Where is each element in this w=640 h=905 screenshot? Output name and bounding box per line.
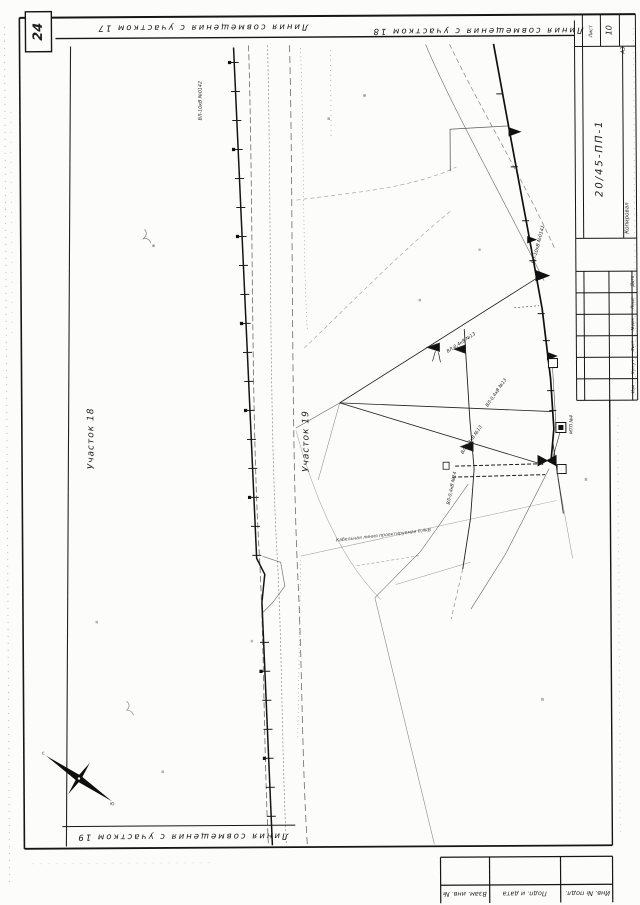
transformer-box-fill [559,426,563,430]
street-edge-curves [296,44,556,349]
powerline-0142 [228,47,276,845]
powerline-0141 [468,43,573,609]
side-table-cell-label: Подп. и дата [503,889,547,896]
drawing-sheet: С Ю 24 Линия совмещения с участком 17 Ли… [0,0,640,905]
stamp-row-label: Изм [631,385,635,394]
pole-flag-icon [509,128,520,136]
page-number: 24 [32,23,45,41]
pole-flag-icon [536,271,549,281]
parcel-18-label: Участок 18 [87,407,96,469]
pole-flag-icon [427,343,439,351]
kopiroval-label: Копировал [625,202,631,233]
projected-cable-line [355,306,546,566]
format-label: А3 [621,46,627,53]
mtp-label: МТП №4 [570,415,575,434]
parcel-boundary-line [62,47,76,847]
compass-south-letter: Ю [110,801,115,806]
powerline-0142-label: ВЛ-10кВ №0142 [198,81,203,120]
road-band [249,45,336,845]
frame-lines [19,8,640,849]
match-line-label-bottom: Линия совмещения с участком 19 [76,831,288,841]
compass-north-letter: С [42,751,45,756]
match-line-label-top-right: Линия совмещения с участком 18 [371,25,583,35]
lv-network-lines [295,279,553,621]
side-table-cell-label: Инв. № подл. [565,889,610,896]
scan-specks [93,93,589,772]
match-line-label-top-left: Линия совмещения с участком 17 [96,22,308,32]
lower-boundary-lines [296,429,559,846]
stamp-row-label: Подп [631,297,635,308]
stamp-row-label: Лист [631,341,635,352]
compass-rose-icon: С Ю [35,740,123,818]
pole-flag-icon [528,237,536,243]
stamp-row-label: Кол.уч [631,360,635,375]
pole-tick-symbols [496,94,556,411]
stamp-row-label: №док [631,318,635,330]
transformer-box-icon [548,359,557,368]
document-number: 20/45-ПП-1 [595,120,605,197]
sheet-number-value: 10 [605,25,613,35]
scanned-plan-page: С Ю 24 Линия совмещения с участком 17 Ли… [0,0,640,905]
stamp-row-label: Дата [631,276,635,287]
parcel-19-label: Участок 19 [302,410,311,472]
side-table-cell-label: Взам. инв. № [443,890,487,897]
scan-artifacts [4,23,638,882]
sheet-word-label: Лист [589,25,594,37]
